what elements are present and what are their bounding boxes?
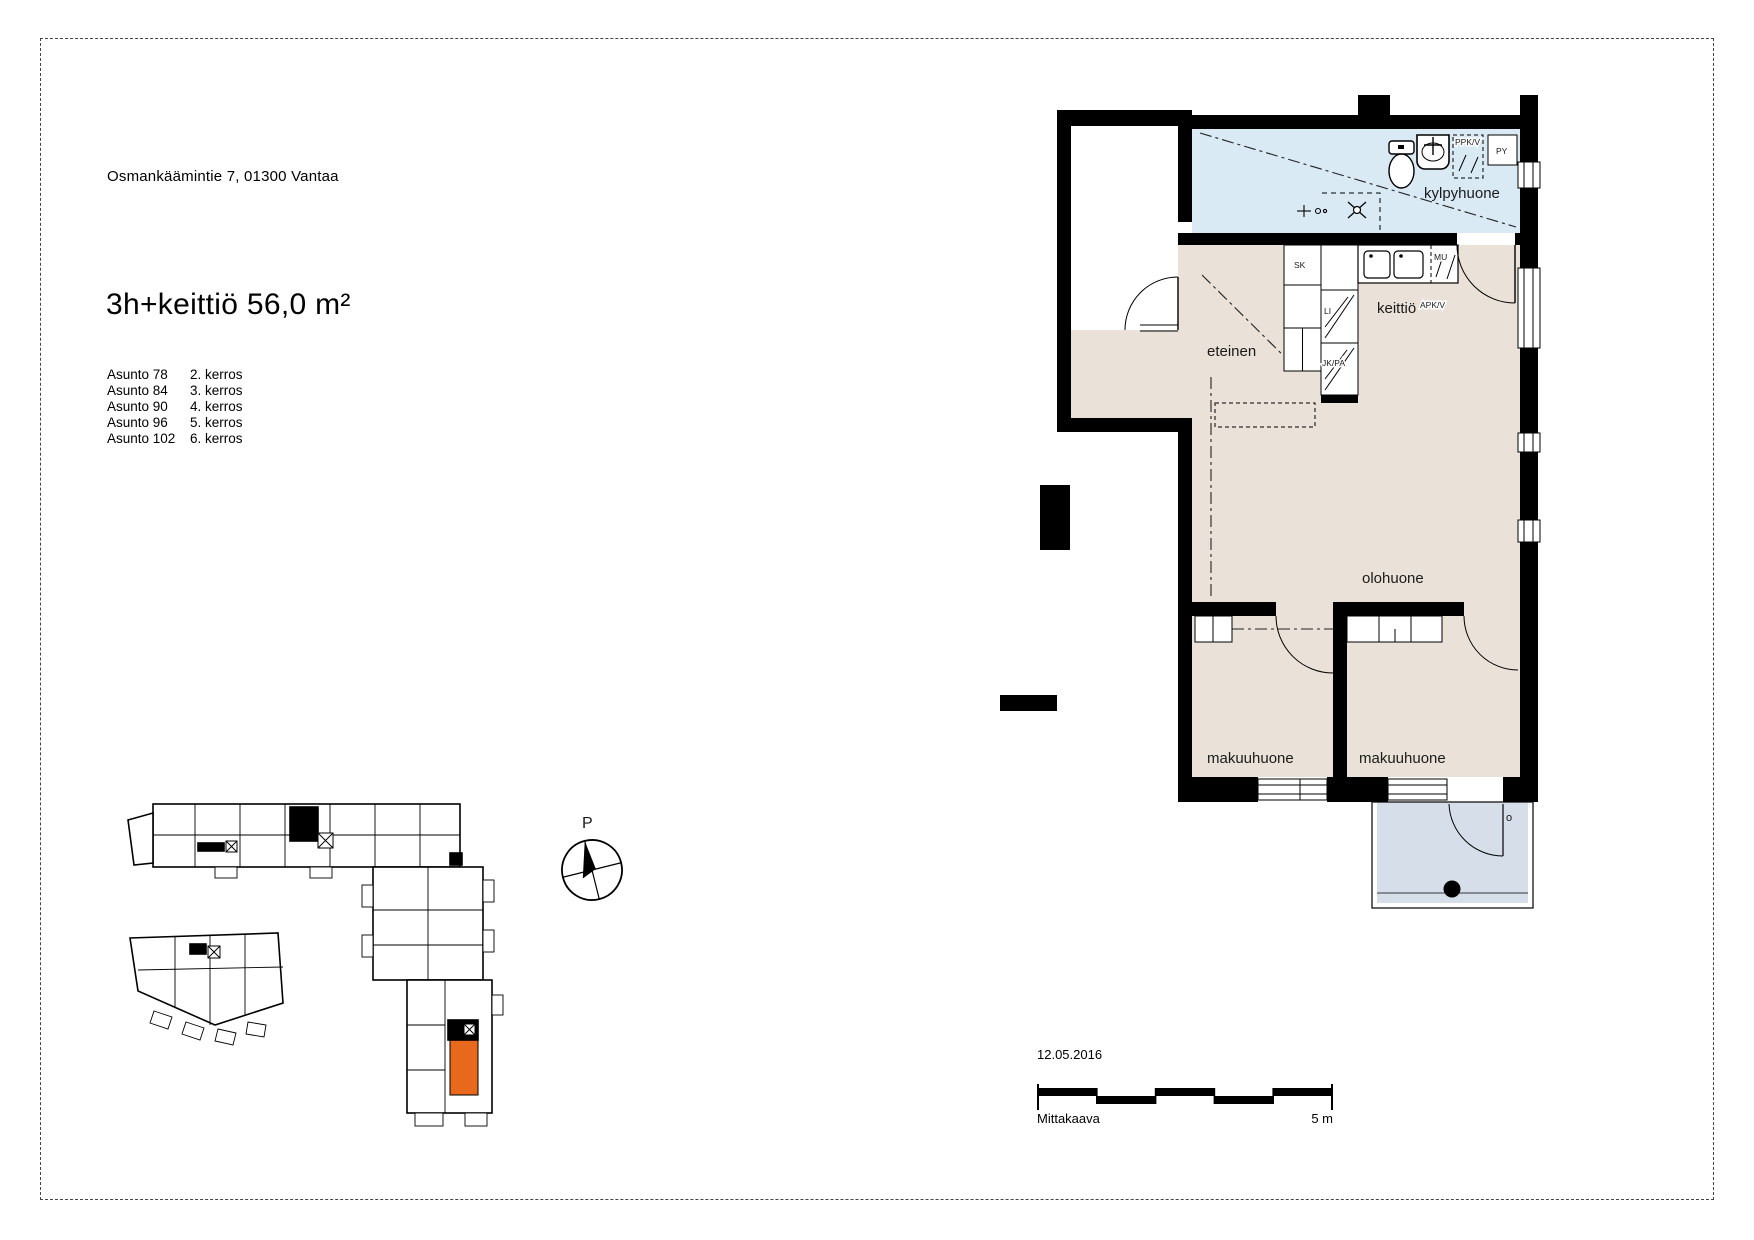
fixture-label-jkpa: JK/PA — [1322, 358, 1345, 368]
apartment-type-title: 3h+keittiö 56,0 m² — [106, 288, 351, 322]
room-label-eteinen: eteinen — [1207, 343, 1256, 360]
balcony-drain-mark: o — [1506, 812, 1512, 824]
apartment-floor: 4. kerros — [190, 399, 243, 415]
north-label: P — [582, 815, 593, 832]
sink-icon — [1364, 251, 1423, 278]
fixture-label-py: PY — [1496, 146, 1508, 156]
fixture-label-sk: SK — [1294, 260, 1306, 270]
apartment-number: Asunto 102 — [107, 431, 190, 447]
street-address: Osmankäämintie 7, 01300 Vantaa — [107, 168, 339, 185]
stair-symbol — [318, 833, 333, 848]
room-label-makuuhuone-1: makuuhuone — [1207, 750, 1294, 767]
apartment-row: Asunto 96 5. kerros — [107, 415, 243, 431]
plan-sheet: Osmankäämintie 7, 01300 Vantaa 3h+keitti… — [0, 0, 1754, 1240]
room-label-kylpyhuone: kylpyhuone — [1424, 185, 1500, 202]
north-needle — [574, 840, 597, 879]
apartment-row: Asunto 102 6. kerros — [107, 431, 243, 447]
floor-plan: o — [1000, 85, 1560, 915]
apartment-number: Asunto 96 — [107, 415, 190, 431]
apartment-number: Asunto 78 — [107, 367, 190, 383]
highlighted-apartment — [450, 1040, 478, 1095]
north-compass: P — [552, 806, 632, 918]
apartment-number: Asunto 90 — [107, 399, 190, 415]
scale-bar — [1035, 1080, 1335, 1114]
apartment-floor: 5. kerros — [190, 415, 243, 431]
scale-caption: Mittakaava — [1037, 1111, 1100, 1126]
stair-core — [290, 807, 318, 841]
kitchen-counter — [1358, 245, 1458, 283]
fixture-label-ppkv: PPK/V — [1455, 137, 1480, 147]
apartment-row: Asunto 84 3. kerros — [107, 383, 243, 399]
room-label-makuuhuone-2: makuuhuone — [1359, 750, 1446, 767]
kitchen-appliance-column — [1321, 245, 1358, 395]
apartment-floor: 3. kerros — [190, 383, 243, 399]
balcony: o — [1372, 802, 1533, 908]
site-plan — [120, 695, 540, 1130]
washbasin-icon — [1417, 135, 1449, 169]
toilet-icon — [1389, 141, 1414, 188]
apartment-floor: 2. kerros — [190, 367, 243, 383]
apartment-floor: 6. kerros — [190, 431, 243, 447]
fixture-label-mu: MU — [1434, 252, 1447, 262]
stair-landing — [1071, 126, 1178, 330]
balcony-column — [1444, 881, 1461, 898]
plan-date: 12.05.2016 — [1037, 1047, 1102, 1062]
room-label-keittio: keittiö — [1377, 300, 1416, 317]
fixture-label-apkv: APK/V — [1420, 300, 1445, 310]
scale-bar-labels: Mittakaava 5 m — [1037, 1111, 1333, 1126]
fixture-label-li: LI — [1324, 306, 1331, 316]
apartment-floor-list: Asunto 78 2. kerros Asunto 84 3. kerros … — [107, 367, 243, 447]
exterior-mask — [1000, 432, 1178, 777]
room-label-olohuone: olohuone — [1362, 570, 1424, 587]
apartment-row: Asunto 90 4. kerros — [107, 399, 243, 415]
apartment-row: Asunto 78 2. kerros — [107, 367, 243, 383]
apartment-number: Asunto 84 — [107, 383, 190, 399]
scale-length: 5 m — [1311, 1111, 1333, 1126]
